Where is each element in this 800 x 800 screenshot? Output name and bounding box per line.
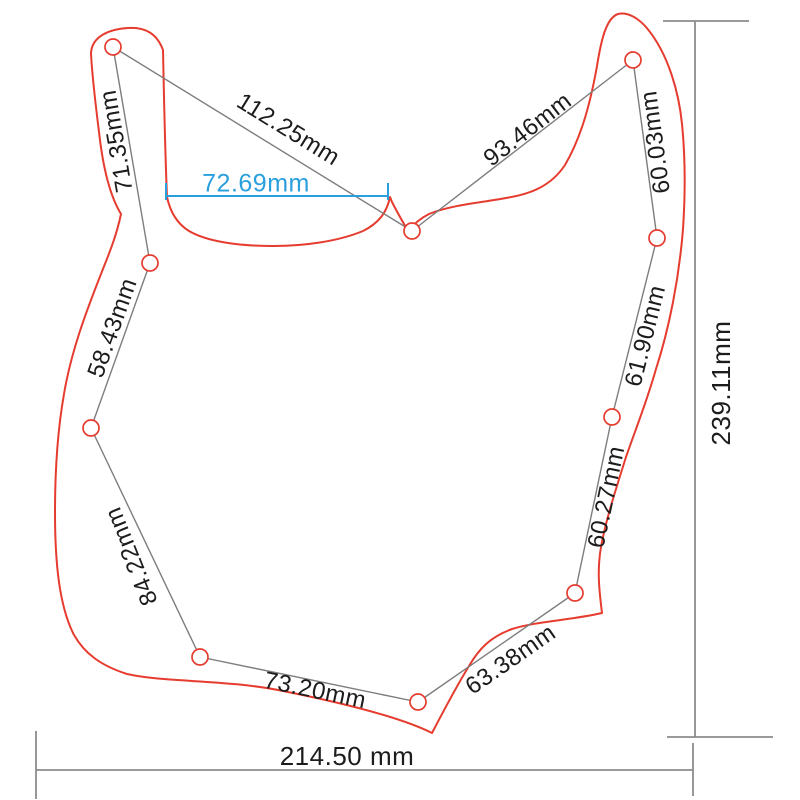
dim-label-overall-height: 239.11mm xyxy=(708,321,734,446)
screw-hole xyxy=(142,255,158,271)
measure-line-84-22 xyxy=(91,428,200,657)
dimension-drawing: 112.25mm 93.46mm 71.35mm 60.03mm 58.43mm… xyxy=(0,0,800,800)
screw-hole xyxy=(625,52,641,68)
measure-lines xyxy=(91,47,657,702)
screw-hole xyxy=(192,649,208,665)
screw-hole xyxy=(604,409,620,425)
dim-label-72-69-highlight: 72.69mm xyxy=(202,172,310,197)
screw-hole xyxy=(83,420,99,436)
dim-label-overall-width: 214.50 mm xyxy=(280,743,415,769)
screw-hole xyxy=(649,230,665,246)
screw-hole xyxy=(105,39,121,55)
screw-hole xyxy=(410,694,426,710)
screw-hole xyxy=(404,223,420,239)
screw-hole xyxy=(567,585,583,601)
pickguard-outline xyxy=(55,14,685,733)
measure-line-112-25 xyxy=(113,47,412,231)
